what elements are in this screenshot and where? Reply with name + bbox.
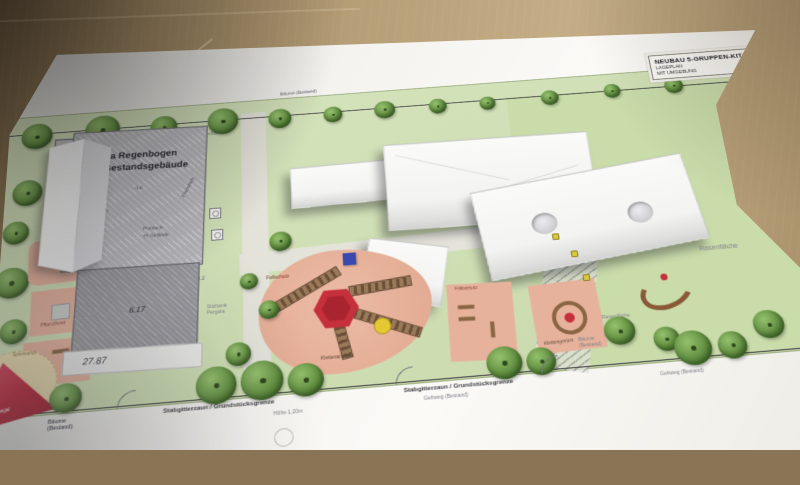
roof-hole bbox=[625, 200, 656, 225]
roof-hole bbox=[529, 211, 560, 236]
roof-vent bbox=[211, 229, 223, 241]
marker-yellow bbox=[582, 274, 590, 281]
label-level: +3.6 bbox=[208, 132, 217, 138]
table-symbol bbox=[458, 305, 475, 310]
label-pflanzbeet: Pflanzbeet bbox=[40, 321, 65, 330]
photo-of-site-model: { "title_block": { "line1": "NEUBAU 5-GR… bbox=[0, 0, 800, 450]
punch-hole-mark bbox=[274, 427, 294, 447]
table-symbol bbox=[459, 316, 476, 321]
label-fallschutz: Fallschutz bbox=[454, 286, 477, 293]
label-gehweg: Gehweg (Bestand) bbox=[424, 393, 469, 403]
label-level: -1.6 bbox=[134, 186, 143, 192]
plan-sheet: Bäume (Bestand) Terrasse Pflanzbeet Kita… bbox=[0, 0, 800, 450]
climbing-ramp bbox=[348, 275, 412, 297]
table-symbol bbox=[490, 321, 495, 337]
label-fallschutz: Fallschutz bbox=[266, 275, 289, 282]
existing-building-lower: 6.17 bbox=[71, 262, 200, 354]
label-pultdach: Pultdach bbox=[143, 226, 163, 232]
tree bbox=[287, 362, 324, 398]
label-klettergeruest: Klettergerüst bbox=[544, 338, 574, 347]
building-name: Bestandsgebäude bbox=[104, 160, 188, 174]
roof-ridge bbox=[395, 155, 508, 180]
marker-yellow bbox=[552, 233, 560, 240]
label-kletteranlage: Kletteranlage bbox=[321, 354, 352, 362]
dimension: 27.87 bbox=[82, 355, 107, 367]
planter-symbol bbox=[51, 303, 70, 321]
marker-yellow bbox=[571, 250, 579, 257]
plan-drawing: Bäume (Bestand) Terrasse Pflanzbeet Kita… bbox=[0, 35, 800, 485]
play-element-yellow bbox=[373, 317, 392, 335]
label-sonnensegel: Sonnensegel bbox=[0, 407, 10, 418]
label-gehweg-2: Gehweg (Bestand) bbox=[660, 369, 705, 379]
play-element-blue bbox=[343, 252, 357, 265]
label-ground: ±0 Gelände bbox=[143, 233, 169, 240]
label-hoehe: Höhe 1,20m bbox=[273, 409, 303, 418]
dimension: 6.17 bbox=[129, 305, 146, 315]
label-trees-bottom: Bäume (Bestand) bbox=[47, 417, 87, 433]
roof-vent bbox=[209, 207, 221, 219]
